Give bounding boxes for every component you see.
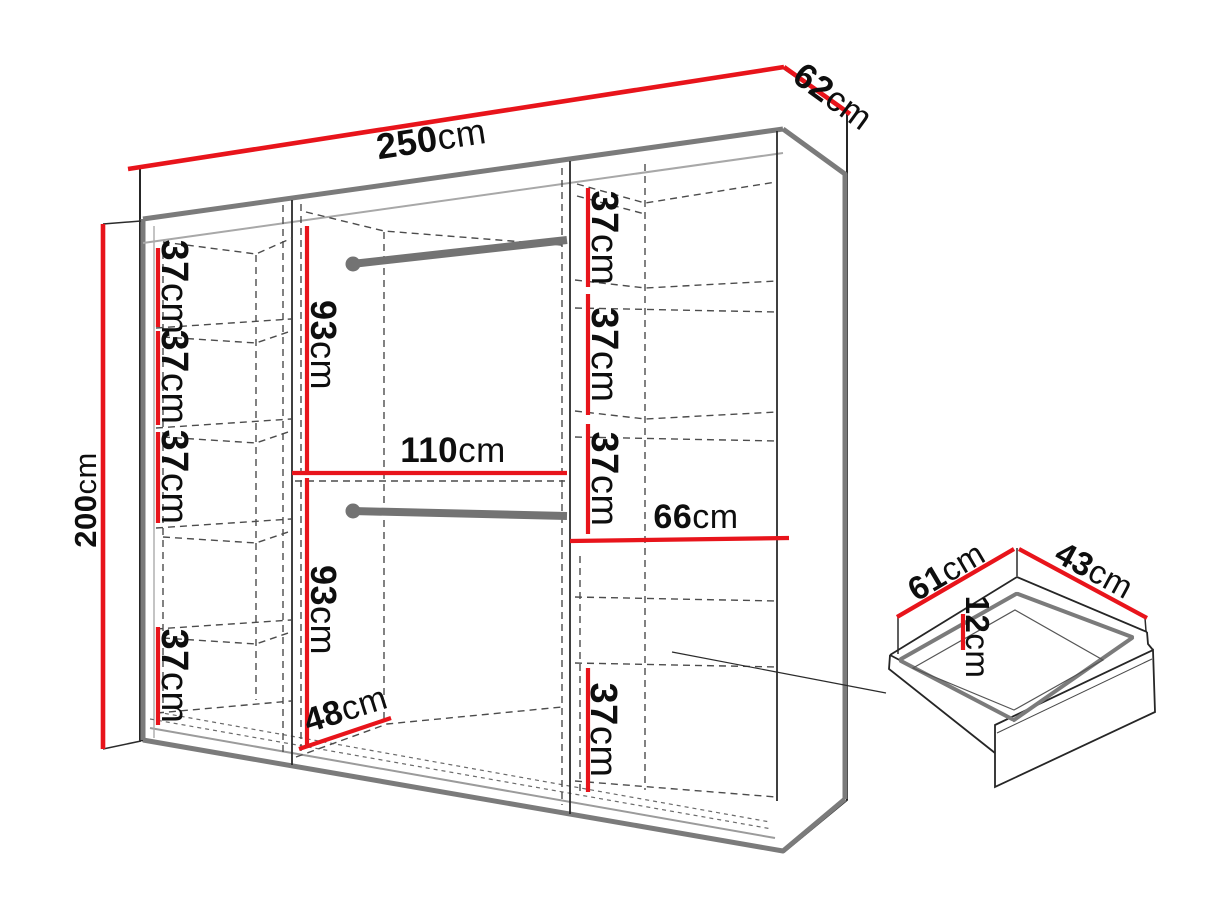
label-right-gap-1: 37cm [583, 191, 625, 286]
label-left-gap-2: 37cm [153, 330, 195, 425]
label-left-gap-1: 37cm [153, 240, 195, 335]
label-right-gap-2: 37cm [583, 308, 625, 403]
label-lower-section-height: 93cm [303, 565, 344, 655]
label-right-gap-3: 37cm [583, 432, 625, 527]
label-upper-section-height: 93cm [303, 300, 344, 390]
label-overall-height: 200cm [68, 452, 103, 548]
drawer-detail [889, 577, 1155, 787]
drawer-right-wall-edge [1147, 632, 1153, 650]
label-middle-width: 110cm [400, 431, 506, 470]
label-drawer-height: 12cm [959, 596, 996, 679]
label-right-gap-4: 37cm [582, 683, 624, 778]
wardrobe-dimension-diagram: 250cm 62cm 200cm 37cm 37cm 37cm 37cm 37c… [0, 0, 1214, 911]
label-left-gap-3: 37cm [153, 430, 195, 525]
diagram-canvas: 250cm 62cm 200cm 37cm 37cm 37cm 37cm 37c… [0, 0, 1214, 911]
height-witness-lines [103, 221, 141, 749]
dim-line-shelf-width-66 [570, 538, 789, 541]
label-drawer-depth: 43cm [1049, 534, 1139, 606]
label-shelf-width: 66cm [653, 498, 738, 536]
label-left-gap-4: 37cm [153, 629, 195, 724]
